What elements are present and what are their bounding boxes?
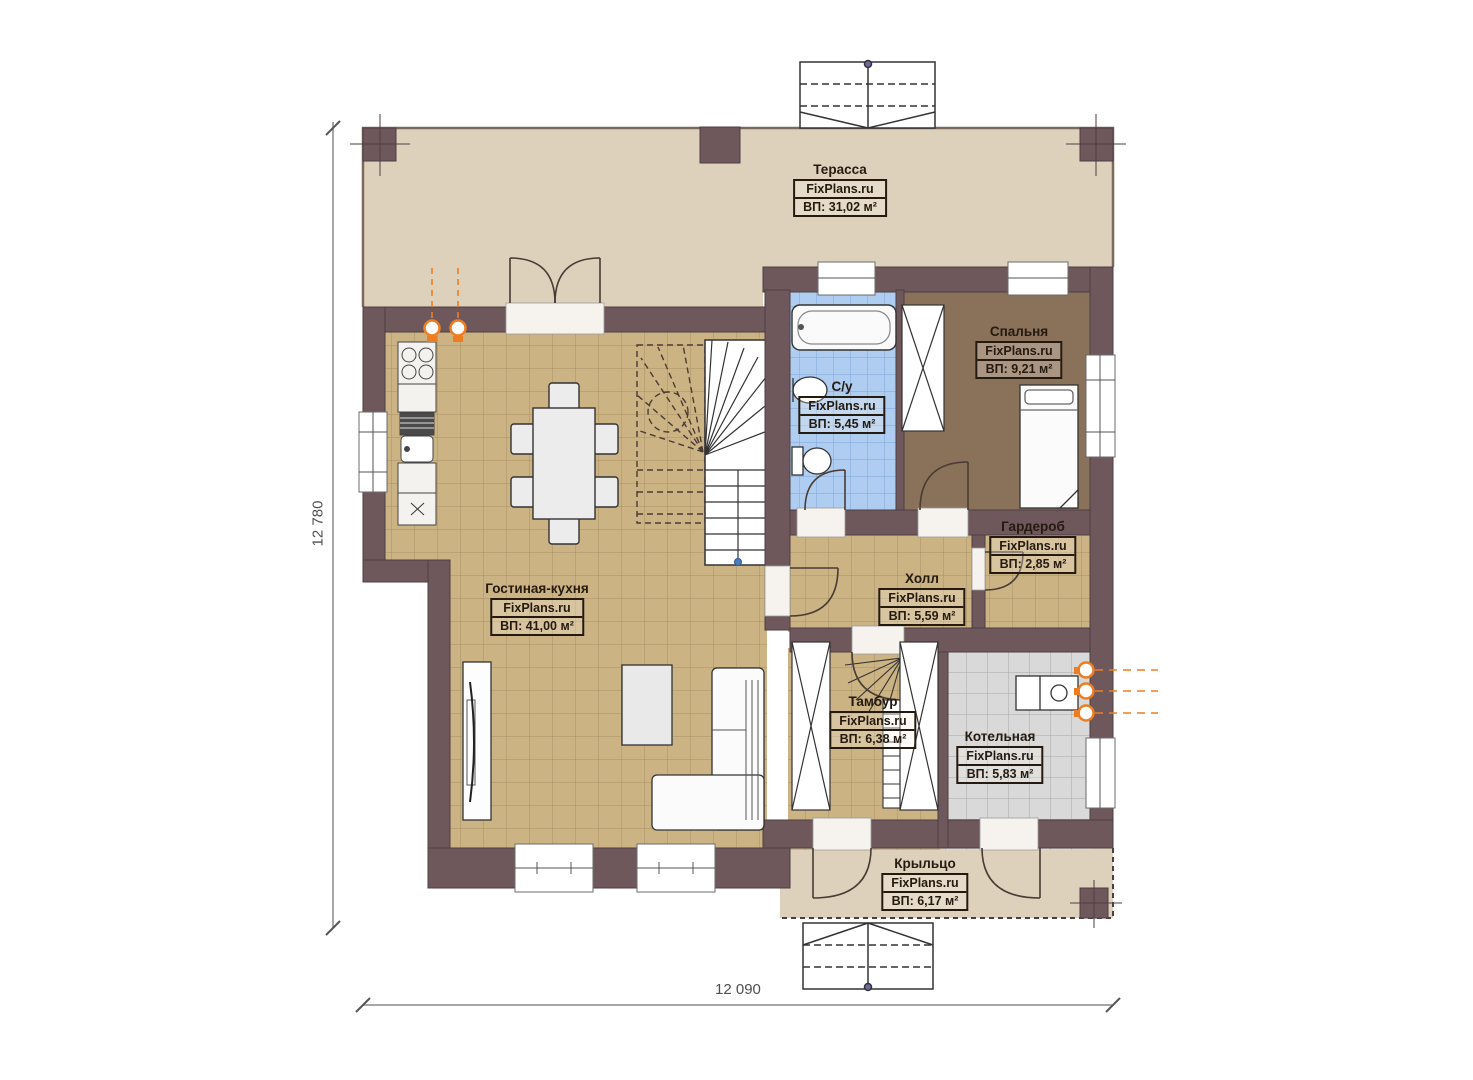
- room-label-porch: Крыльцо FixPlans.ru ВП: 6,17 м²: [881, 856, 968, 911]
- room-label-bedroom: Спальня FixPlans.ru ВП: 9,21 м²: [975, 324, 1062, 379]
- window-boiler: [1086, 738, 1115, 808]
- room-name: Гостиная-кухня: [485, 581, 588, 596]
- window-bottom-1: [515, 844, 593, 892]
- room-name: Спальня: [975, 324, 1062, 339]
- window-terrace-2: [1008, 262, 1068, 295]
- watermark: FixPlans.ru: [492, 600, 582, 616]
- room-label-tambour: Тамбур FixPlans.ru ВП: 6,38 м²: [829, 694, 916, 749]
- room-area: ВП: 6,17 м²: [883, 891, 966, 909]
- room-name: Тамбур: [829, 694, 916, 709]
- watermark: FixPlans.ru: [880, 590, 963, 606]
- room-name: С/у: [798, 379, 885, 394]
- room-area: ВП: 9,21 м²: [977, 359, 1060, 377]
- room-name: Терасса: [793, 162, 887, 177]
- window-terrace-1: [818, 262, 875, 295]
- boiler-unit: [1016, 676, 1078, 710]
- bed: [1020, 385, 1078, 508]
- room-label-terrace: Терасса FixPlans.ru ВП: 31,02 м²: [793, 162, 887, 217]
- dimension-left-label: 12 780: [309, 501, 326, 547]
- window-bedroom: [1086, 355, 1115, 457]
- watermark: FixPlans.ru: [958, 748, 1041, 764]
- room-label-bathroom: С/у FixPlans.ru ВП: 5,45 м²: [798, 379, 885, 434]
- bathtub: [792, 305, 896, 350]
- room-area: ВП: 6,38 м²: [831, 729, 914, 747]
- steps-bottom: [803, 923, 933, 991]
- watermark: FixPlans.ru: [977, 343, 1060, 359]
- window-bottom-2: [637, 844, 715, 892]
- room-label-boiler: Котельная FixPlans.ru ВП: 5,83 м²: [956, 729, 1043, 784]
- kitchen-unit: [398, 342, 436, 525]
- window-left-kitchen: [359, 412, 387, 492]
- chimney-block: [700, 127, 740, 163]
- room-area: ВП: 31,02 м²: [795, 197, 885, 215]
- toilet: [792, 447, 831, 475]
- watermark: FixPlans.ru: [991, 538, 1074, 554]
- wardrobe-cabinet-x: [902, 305, 944, 431]
- room-name: Крыльцо: [881, 856, 968, 871]
- room-area: ВП: 5,59 м²: [880, 606, 963, 624]
- stairs-lower-flight: [705, 340, 770, 566]
- watermark: FixPlans.ru: [883, 875, 966, 891]
- dimension-bottom-label: 12 090: [715, 981, 761, 998]
- room-area: ВП: 2,85 м²: [991, 554, 1074, 572]
- room-area: ВП: 41,00 м²: [492, 616, 582, 634]
- room-area: ВП: 5,83 м²: [958, 764, 1041, 782]
- utility-markers-right: [1074, 663, 1158, 721]
- watermark: FixPlans.ru: [831, 713, 914, 729]
- steps-top: [800, 61, 935, 129]
- room-area: ВП: 5,45 м²: [800, 414, 883, 432]
- room-name: Гардероб: [989, 519, 1076, 534]
- room-label-wardrobe: Гардероб FixPlans.ru ВП: 2,85 м²: [989, 519, 1076, 574]
- tv-stand: [463, 662, 491, 820]
- room-label-living-kitchen: Гостиная-кухня FixPlans.ru ВП: 41,00 м²: [485, 581, 588, 636]
- floor-plan-canvas: Терасса FixPlans.ru ВП: 31,02 м² Спальня…: [0, 0, 1473, 1080]
- coffee-table: [622, 665, 672, 745]
- room-label-hall: Холл FixPlans.ru ВП: 5,59 м²: [878, 571, 965, 626]
- room-name: Котельная: [956, 729, 1043, 744]
- watermark: FixPlans.ru: [800, 398, 883, 414]
- floor-plan-drawing: [0, 0, 1473, 1080]
- room-name: Холл: [878, 571, 965, 586]
- watermark: FixPlans.ru: [795, 181, 885, 197]
